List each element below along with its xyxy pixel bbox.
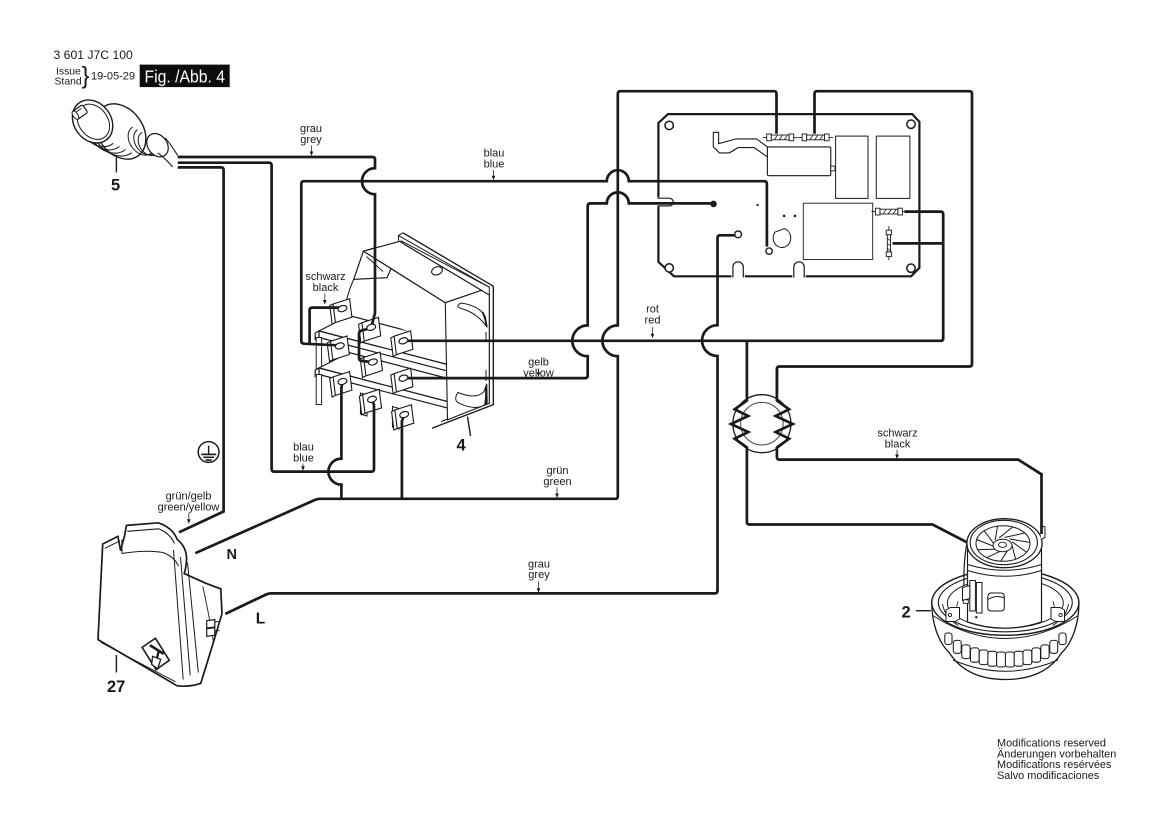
svg-text:N: N bbox=[227, 547, 237, 563]
svg-text:Fig. /Abb. 4: Fig. /Abb. 4 bbox=[145, 67, 226, 87]
svg-text:19-05-29: 19-05-29 bbox=[91, 71, 135, 83]
svg-text:Stand: Stand bbox=[55, 77, 82, 88]
svg-text:red: red bbox=[645, 314, 661, 326]
svg-text:3 601 J7C 100: 3 601 J7C 100 bbox=[54, 48, 134, 62]
svg-text:5: 5 bbox=[111, 177, 120, 195]
svg-text:L: L bbox=[256, 611, 265, 628]
svg-text:black: black bbox=[313, 282, 339, 294]
svg-text:blue: blue bbox=[484, 158, 505, 170]
svg-text:grey: grey bbox=[528, 569, 550, 581]
svg-text:27: 27 bbox=[107, 678, 125, 696]
svg-text:black: black bbox=[885, 438, 911, 450]
svg-text:grey: grey bbox=[300, 134, 322, 146]
svg-text:}: } bbox=[82, 63, 90, 90]
svg-text:blue: blue bbox=[293, 452, 314, 464]
svg-text:2: 2 bbox=[902, 604, 911, 622]
svg-text:green: green bbox=[543, 476, 571, 488]
svg-text:Salvo modificaciones: Salvo modificaciones bbox=[997, 770, 1100, 782]
svg-text:4: 4 bbox=[457, 437, 467, 455]
svg-text:green/yellow: green/yellow bbox=[158, 501, 220, 513]
